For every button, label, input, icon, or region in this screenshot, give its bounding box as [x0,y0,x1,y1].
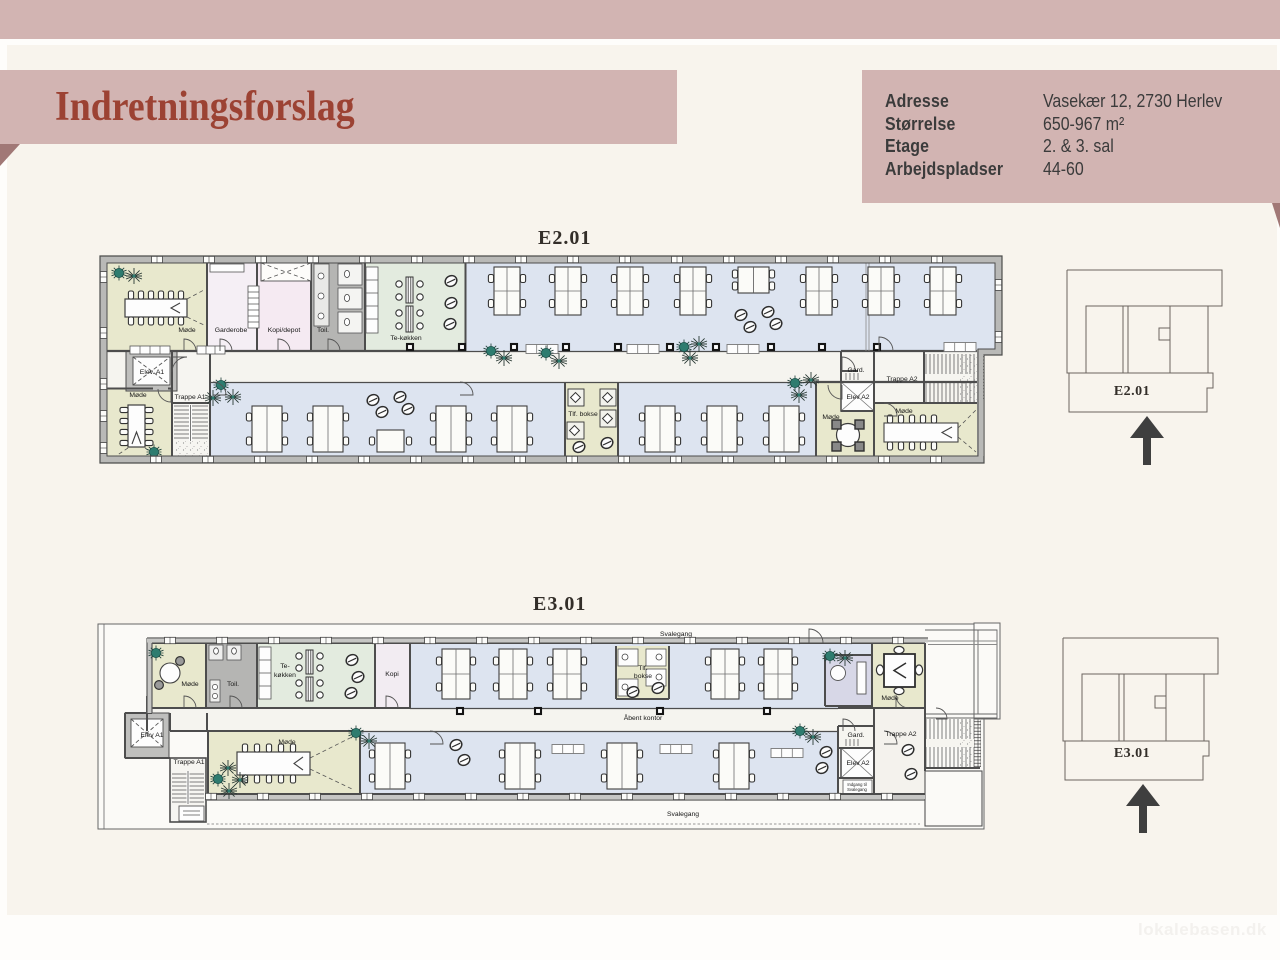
svg-text:Tlf. bokse: Tlf. bokse [568,411,598,418]
svg-text:Møde: Møde [129,392,147,399]
svg-text:køkken: køkken [274,672,296,679]
svg-text:Svalegang: Svalegang [667,811,699,818]
svg-text:Svalegang: Svalegang [660,631,692,638]
svg-text:Gard.: Gard. [848,367,865,374]
svg-text:Tlf.: Tlf. [638,665,648,672]
svg-text:Møde: Møde [181,681,199,688]
svg-text:Toil.: Toil. [317,327,329,334]
svg-text:Trappe A2: Trappe A2 [886,376,917,383]
svg-text:Møde: Møde [178,327,196,334]
svg-text:Gard.: Gard. [848,732,865,739]
svg-text:E2.01: E2.01 [1114,384,1150,399]
svg-text:Elev. A1: Elev. A1 [140,369,165,376]
svg-text:Elev A2: Elev A2 [846,760,869,767]
svg-text:bokse: bokse [634,673,652,680]
svg-text:Åbent kontor: Åbent kontor [624,713,663,722]
svg-text:Garderobe: Garderobe [215,327,248,334]
svg-text:Møde: Møde [881,695,899,702]
svg-text:Møde: Møde [895,408,913,415]
svg-text:Elev A2: Elev A2 [846,394,869,401]
svg-text:Trappe A1: Trappe A1 [173,759,204,766]
svg-text:Trappe A1: Trappe A1 [174,394,205,401]
svg-text:Toil.: Toil. [227,681,239,688]
svg-text:Te-køkken: Te-køkken [390,335,422,342]
svg-text:Kopi/depot: Kopi/depot [268,327,301,334]
svg-text:E3.01: E3.01 [1114,746,1150,761]
svg-text:Te-: Te- [280,663,289,670]
svg-text:Møde: Møde [278,739,296,746]
svg-text:Svalegang: Svalegang [847,787,867,792]
svg-text:Kopi: Kopi [385,671,399,678]
svg-text:Elev A1: Elev A1 [140,732,163,739]
svg-text:Møde: Møde [822,414,840,421]
svg-text:Trappe A2: Trappe A2 [885,731,916,738]
